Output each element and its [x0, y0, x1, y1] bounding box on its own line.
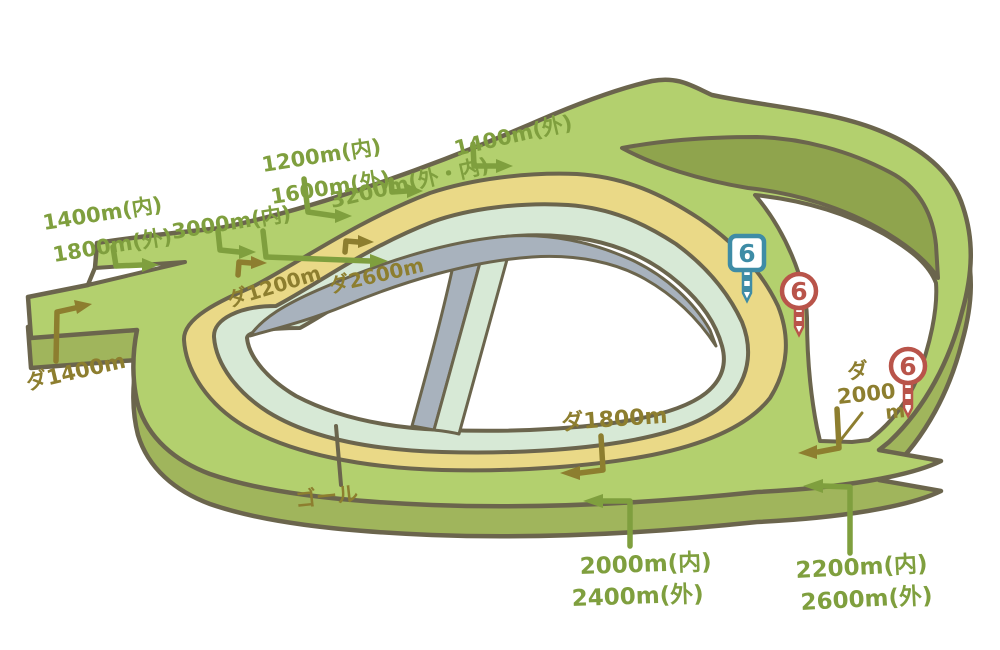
marker-pole-stripe — [795, 321, 803, 326]
marker-pole — [743, 270, 751, 301]
marker-sign-number: 6 — [899, 352, 916, 381]
label-turf-2400-outer: 2400m(外) — [571, 580, 704, 612]
track-svg: 1400m(内) 1800m(外) 3000m(内) 1200m(内) 1600… — [0, 0, 1000, 650]
label-turf-2000-inner: 2000m(内) — [579, 549, 712, 580]
marker-pole-stripe — [904, 388, 912, 394]
marker-sign-number: 6 — [738, 239, 755, 268]
marker-pole-stripe — [904, 399, 912, 405]
marker-pole-stripe — [743, 286, 751, 292]
label-turf-2600-outer: 2600m(外) — [800, 582, 933, 616]
marker-pole-stripe — [743, 275, 751, 281]
marker-pole-stripe — [795, 312, 803, 317]
label-dirt-2000-kana: ダ — [846, 358, 869, 384]
label-turf-2200-inner: 2200m(内) — [795, 551, 928, 584]
racecourse-illustration: 1400m(内) 1800m(外) 3000m(内) 1200m(内) 1600… — [0, 0, 1000, 650]
marker-sign-number: 6 — [790, 277, 807, 306]
